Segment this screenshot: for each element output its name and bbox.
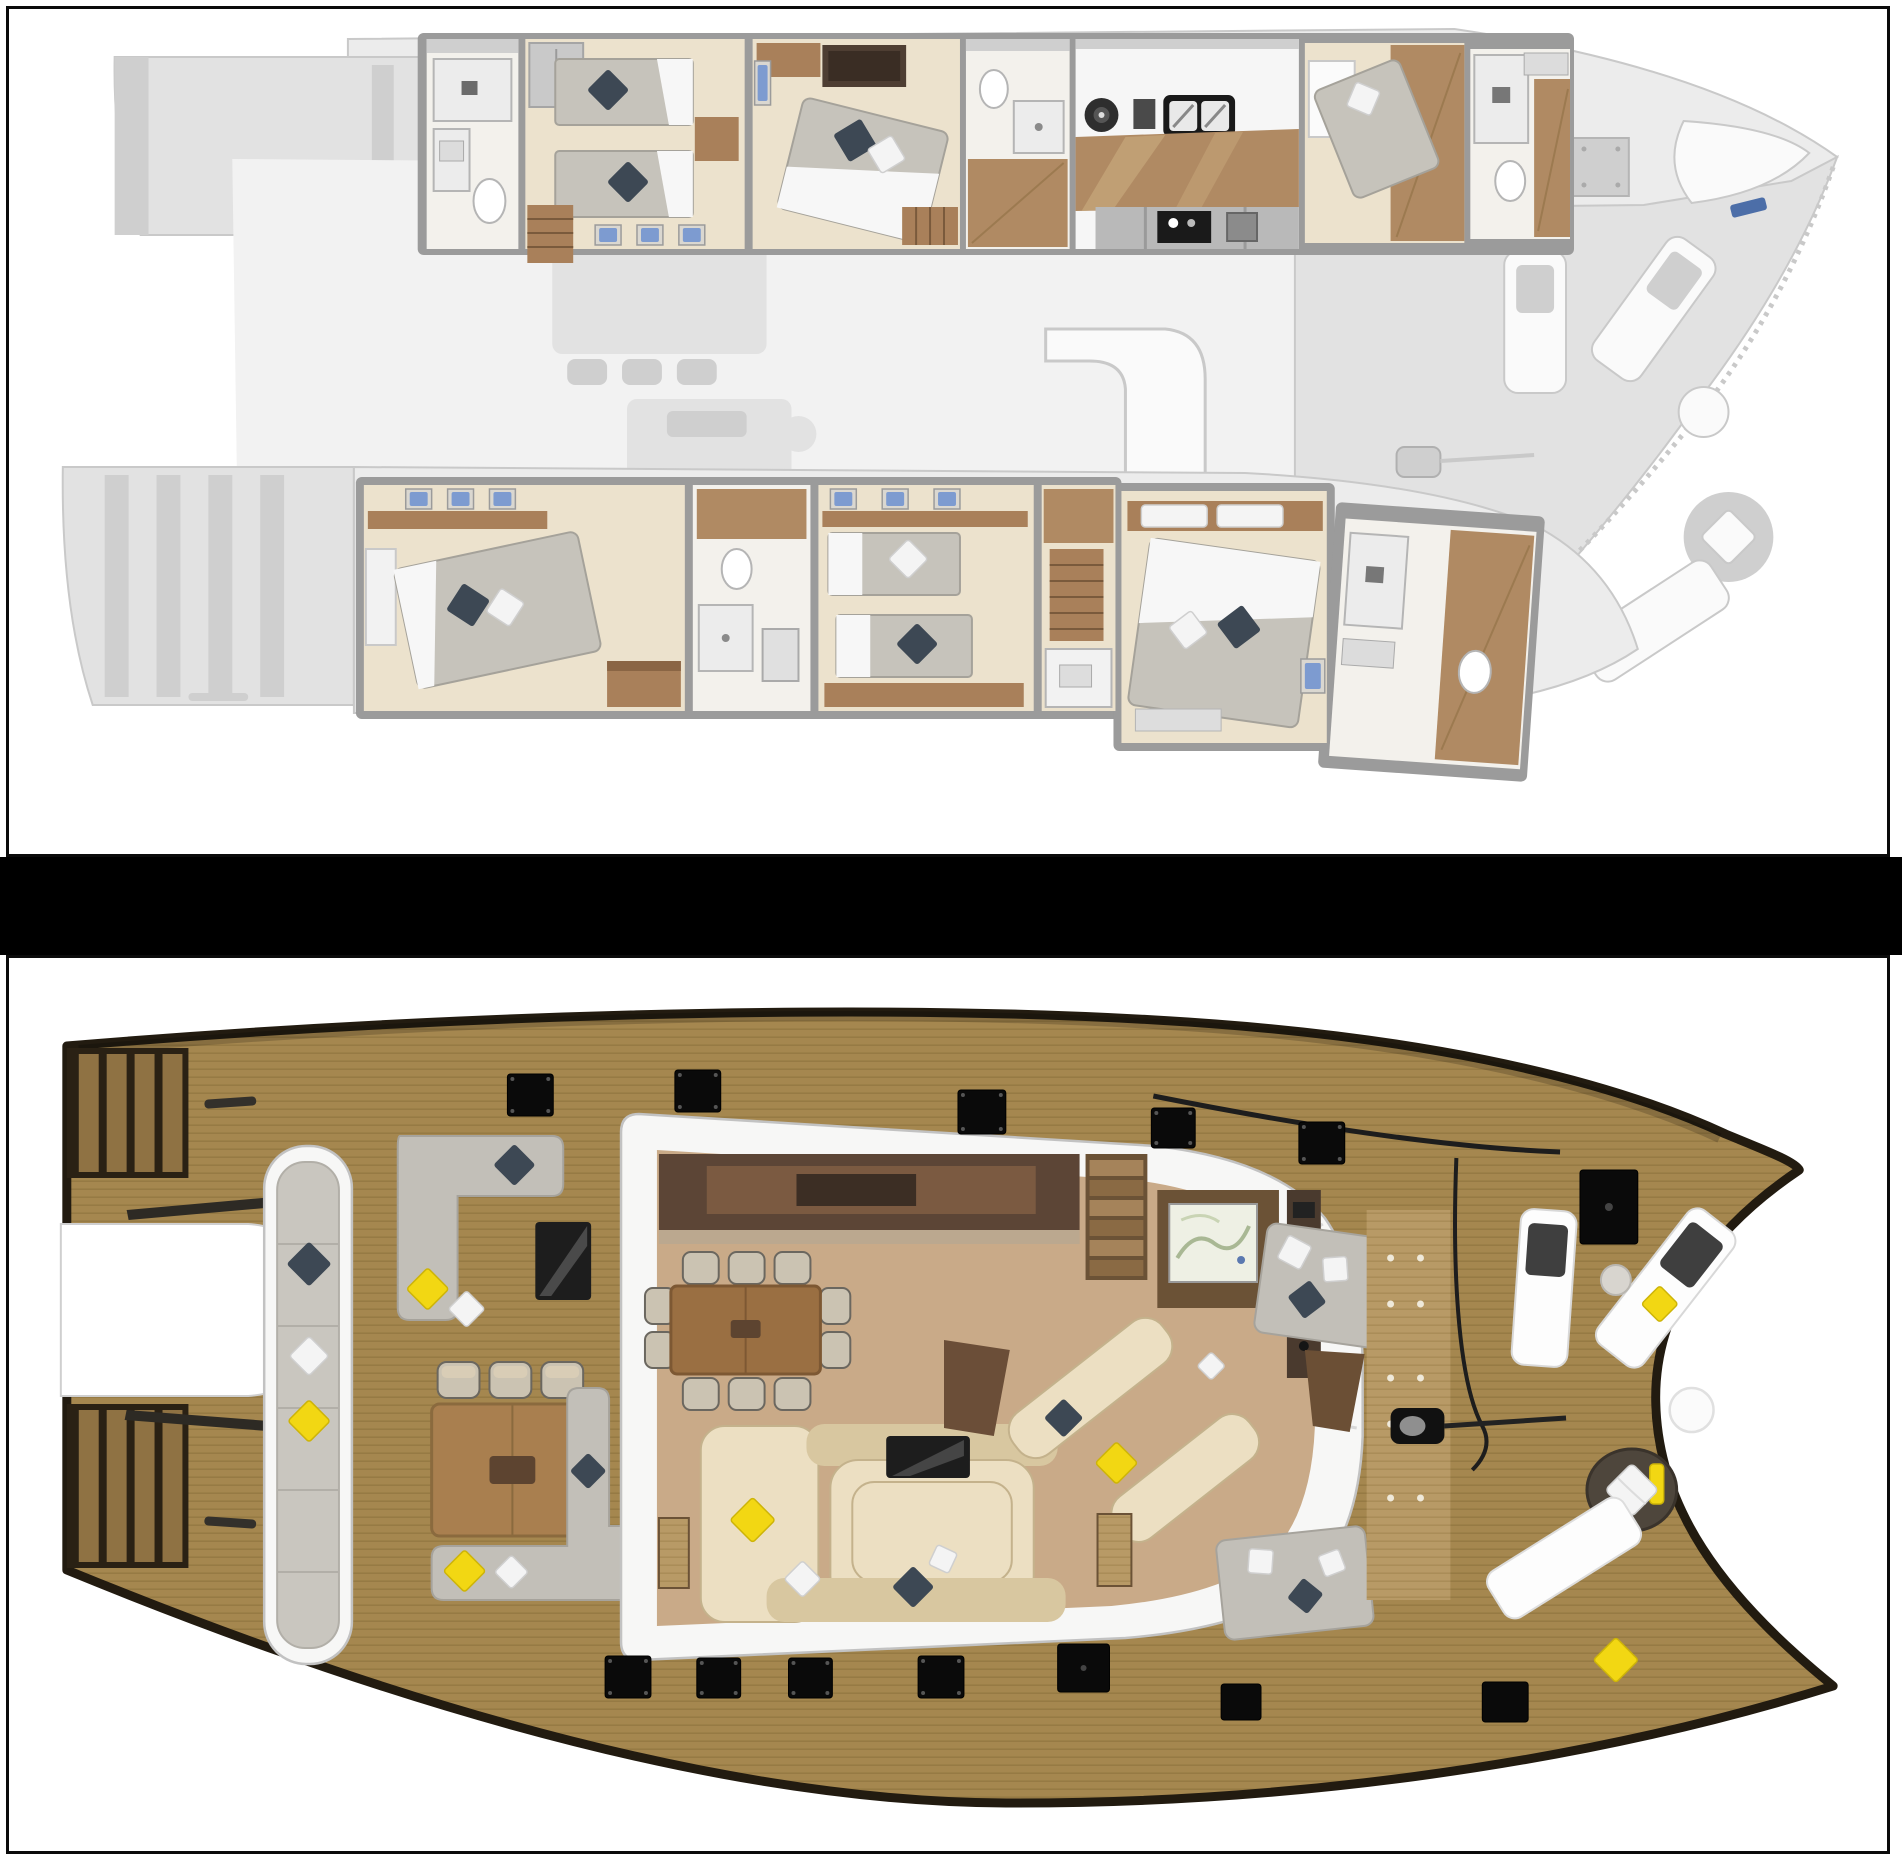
hull-hatches-blue [595,225,705,245]
port-vip-cabin [753,39,960,249]
main-deck-panel [6,955,1890,1854]
hatch [507,1074,553,1116]
lower-deck-panel [6,6,1890,857]
white-round-table [1670,1388,1714,1432]
transom-bench [264,1146,352,1664]
aft-tv [535,1222,591,1300]
twin-bed-1 [555,59,693,125]
stbd-twin-cabin [818,485,1033,711]
saloon-galley [659,1154,1080,1244]
hatch [697,1658,741,1698]
anchor-locker-ghost [1573,138,1629,196]
hatch [1299,1122,1345,1164]
stbd-bathroom [693,485,811,711]
cabin-stairs [527,205,573,263]
companionway-starboard [1098,1514,1132,1586]
mast-step-strip [1367,1210,1451,1600]
port-bow-bathroom [1470,49,1570,239]
lower-deck-plan-svg [9,9,1887,854]
port-aft-bathroom [427,39,519,249]
hull-hatches-blue [406,489,516,509]
twin-bed-2 [555,151,693,217]
hatch [918,1656,964,1698]
companionway-port [659,1518,689,1588]
port-twin-cabin [525,39,744,263]
double-sink [1163,95,1235,137]
separator-band [0,857,1902,955]
lounger-1 [1511,1208,1578,1368]
hull-hatches-blue [830,489,960,509]
side-table-small [1601,1265,1631,1295]
vip-steps [902,207,958,245]
saloon-stairs [1086,1154,1148,1280]
saloon-tv [886,1436,970,1478]
hatch [605,1656,651,1698]
hatch [1151,1108,1195,1148]
starboard-hull-cabins [356,477,1545,782]
oven [1227,213,1257,241]
port-galley [1076,39,1299,249]
master-bed [1127,538,1320,728]
saloon-u-sofa [701,1424,1066,1622]
cooktop [1157,211,1211,243]
hatch [1221,1684,1261,1720]
hatch [675,1070,721,1112]
side-sunpad-aft [1215,1525,1374,1640]
stbd-corridor [1042,485,1116,711]
hatch [958,1090,1006,1134]
port-hull-cabins [418,33,1574,263]
hatch-large [1058,1644,1110,1692]
stbd-master-bathroom [1329,518,1536,769]
twin-bed-1 [828,533,960,595]
port-shower-room [966,39,1070,249]
anchor-locker-hatch [1580,1170,1638,1244]
yacht-deck-plans-sheet [0,0,1902,1860]
stairs-down [1050,549,1104,641]
hatch [1482,1682,1528,1722]
port-crew-cabin [1305,43,1464,243]
starboard-swim-platform-ghost [63,467,354,705]
twin-bed-2 [836,615,972,677]
main-deck-plan-svg [9,958,1887,1851]
hatch [789,1658,833,1698]
stbd-master-cabin [1121,491,1326,743]
stbd-double-cabin [364,485,685,711]
